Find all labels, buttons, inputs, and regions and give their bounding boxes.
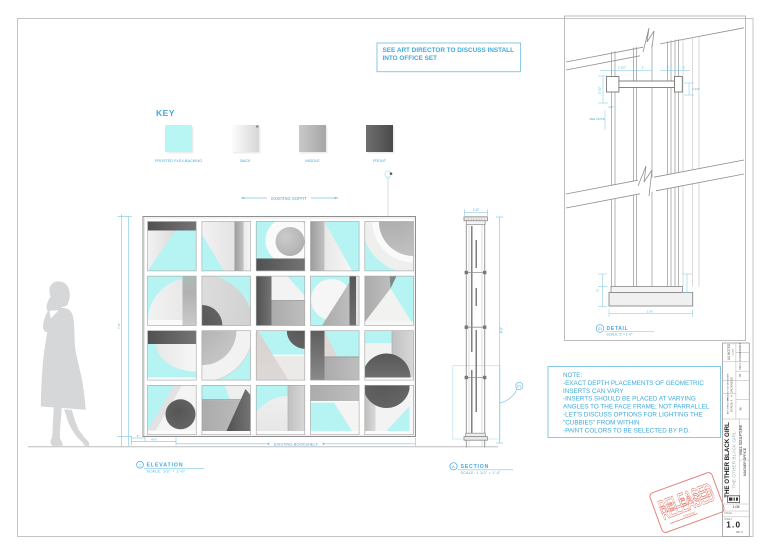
svg-text:STAGE: STAGE (724, 512, 732, 515)
svg-text:ELEVATION: ELEVATION (147, 462, 184, 468)
svg-text:EXISTING BOOKSHELF: EXISTING BOOKSHELF (274, 442, 319, 447)
svg-text:7'-0": 7'-0" (117, 323, 121, 329)
svg-text:P1: P1 (517, 385, 521, 389)
svg-text:KEY: KEY (156, 108, 175, 118)
svg-text:THE OTHER BLACK GIRL: THE OTHER BLACK GIRL (731, 431, 737, 489)
svg-text:D1: D1 (598, 327, 602, 331)
svg-text:INSERTS CAN VARY: INSERTS CAN VARY (563, 388, 624, 395)
svg-text:MAGNER OFFICE: MAGNER OFFICE (743, 447, 747, 476)
svg-text:1'-0": 1'-0" (647, 310, 653, 314)
svg-text:REV 2: REV 2 (739, 362, 742, 370)
svg-text:2": 2" (683, 66, 686, 70)
svg-text:1/2": 1/2" (608, 105, 613, 109)
svg-text:-EXACT DEPTH PLACEMENTS OF GEO: -EXACT DEPTH PLACEMENTS OF GEOMETRIC (563, 380, 704, 387)
svg-text:THE OTHER BLACK GIRL: THE OTHER BLACK GIRL (724, 422, 731, 498)
svg-text:8'-0": 8'-0" (500, 327, 504, 333)
svg-text:"CUBBIES" FROM WITHIN: "CUBBIES" FROM WITHIN (563, 419, 640, 426)
svg-text:STAGE 4: STAGE 4 (730, 399, 734, 412)
svg-text:1": 1" (667, 66, 670, 70)
svg-text:EXISTING SOFFIT: EXISTING SOFFIT (271, 196, 307, 201)
svg-text:4'-0": 4'-0" (151, 437, 157, 441)
svg-text:DRAWN: DRAWN (739, 352, 742, 361)
svg-text:JW: JW (739, 407, 743, 411)
svg-text:1": 1" (642, 66, 645, 70)
svg-text:2 1/2": 2 1/2" (618, 66, 626, 70)
svg-text:SEE ART DIRECTOR TO DISCUSS IN: SEE ART DIRECTOR TO DISCUSS INSTALL (383, 47, 515, 54)
svg-text:5 1/2": 5 1/2" (598, 86, 602, 94)
svg-text:A. JACKNESS: A. JACKNESS (730, 377, 734, 397)
svg-text:2": 2" (137, 434, 140, 438)
svg-text:SCALE: SCALE (732, 348, 735, 356)
svg-text:3 1/2": 3 1/2" (692, 87, 700, 91)
svg-text:SCALE: 1/2" = 1'-0": SCALE: 1/2" = 1'-0" (147, 470, 186, 474)
svg-text:-PAINT COLORS TO BE SELECTED B: -PAINT COLORS TO BE SELECTED BY P.D. (563, 427, 690, 434)
svg-text:INTO OFFICE SET: INTO OFFICE SET (383, 55, 438, 62)
svg-text:AS NOTED: AS NOTED (727, 343, 731, 360)
svg-text:OF 4: OF 4 (736, 530, 743, 534)
svg-text:SCALE: 3" = 1'-0": SCALE: 3" = 1'-0" (607, 333, 634, 337)
svg-text:1'-6": 1'-6" (473, 208, 479, 212)
svg-text:MIDDLE: MIDDLE (305, 159, 320, 163)
svg-text:DETAIL: DETAIL (607, 326, 629, 332)
svg-text:A: A (452, 464, 455, 469)
svg-text:NOTE:: NOTE: (563, 372, 582, 379)
svg-text:SCALE: 1 1/2" = 1'-0": SCALE: 1 1/2" = 1'-0" (461, 471, 502, 475)
svg-text:BACK: BACK (240, 159, 251, 163)
svg-text:-INSERTS SHOULD BE PLACED AT V: -INSERTS SHOULD BE PLACED AT VARYING (563, 396, 696, 403)
svg-text:SECTION: SECTION (461, 464, 490, 470)
svg-text:ANGLES TO THE FACE FRAME; NOT: ANGLES TO THE FACE FRAME; NOT PARRALLEL (563, 404, 710, 411)
svg-text:FROSTED PLEX BACKING: FROSTED PLEX BACKING (155, 159, 202, 163)
svg-text:-LET'S DISCUSS OPTIONS FOR LIG: -LET'S DISCUSS OPTIONS FOR LIGHTING THE (563, 412, 703, 419)
svg-text:04/08/21: 04/08/21 (738, 342, 742, 353)
svg-text:1.0: 1.0 (726, 521, 741, 530)
svg-text:SEE NOTE: SEE NOTE (589, 117, 604, 121)
svg-text:FRONT: FRONT (373, 159, 387, 163)
svg-text:1:08: 1:08 (733, 505, 740, 509)
svg-text:6": 6" (596, 289, 600, 292)
